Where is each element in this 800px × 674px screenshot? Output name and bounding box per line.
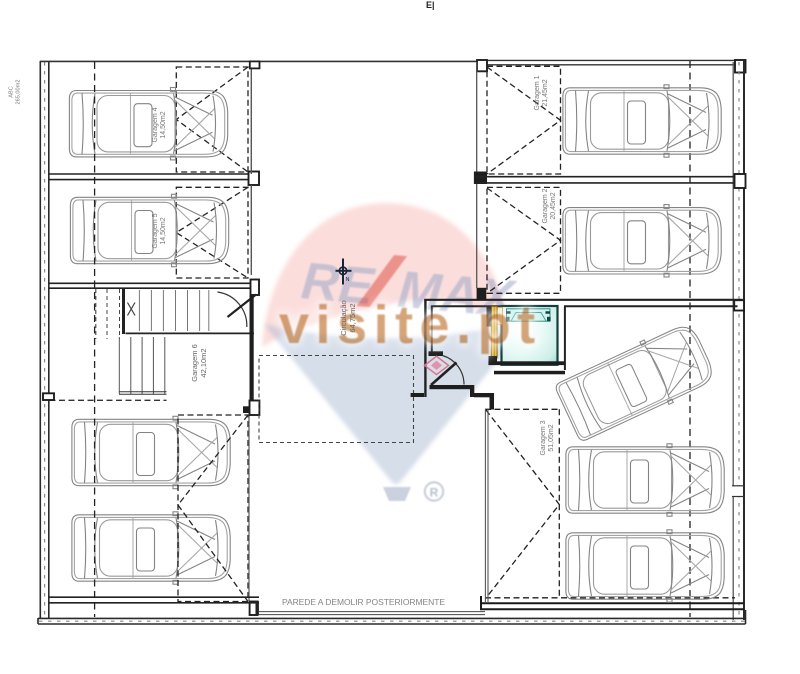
svg-text:Circulação: Circulação — [339, 300, 348, 335]
svg-text:Garagem 5: Garagem 5 — [152, 213, 159, 248]
svg-text:visite.pt: visite.pt — [279, 295, 542, 355]
svg-text:ABC: ABC — [9, 86, 15, 98]
svg-text:Garagem 4: Garagem 4 — [152, 107, 159, 142]
svg-text:E|: E| — [426, 0, 435, 10]
svg-text:PAREDE A DEMOLIR POSTERIORMENT: PAREDE A DEMOLIR POSTERIORMENTE — [282, 597, 445, 607]
svg-text:Garagem 1: Garagem 1 — [534, 75, 541, 110]
svg-text:20,45m2: 20,45m2 — [550, 192, 557, 219]
svg-text:21,45m2: 21,45m2 — [542, 79, 549, 106]
svg-text:51,05m2: 51,05m2 — [548, 424, 555, 451]
svg-text:42,10m2: 42,10m2 — [199, 348, 208, 377]
svg-text:64,75m2: 64,75m2 — [348, 303, 357, 332]
svg-text:14,50m2: 14,50m2 — [160, 217, 167, 244]
svg-text:265,00m2: 265,00m2 — [16, 80, 22, 105]
svg-text:Garagem 3: Garagem 3 — [540, 420, 547, 455]
svg-text:14,50m2: 14,50m2 — [160, 111, 167, 138]
svg-text:R: R — [430, 486, 439, 500]
svg-text:Garagem 6: Garagem 6 — [190, 344, 199, 382]
svg-text:N: N — [346, 277, 350, 283]
svg-text:Garagem 2: Garagem 2 — [542, 188, 549, 223]
